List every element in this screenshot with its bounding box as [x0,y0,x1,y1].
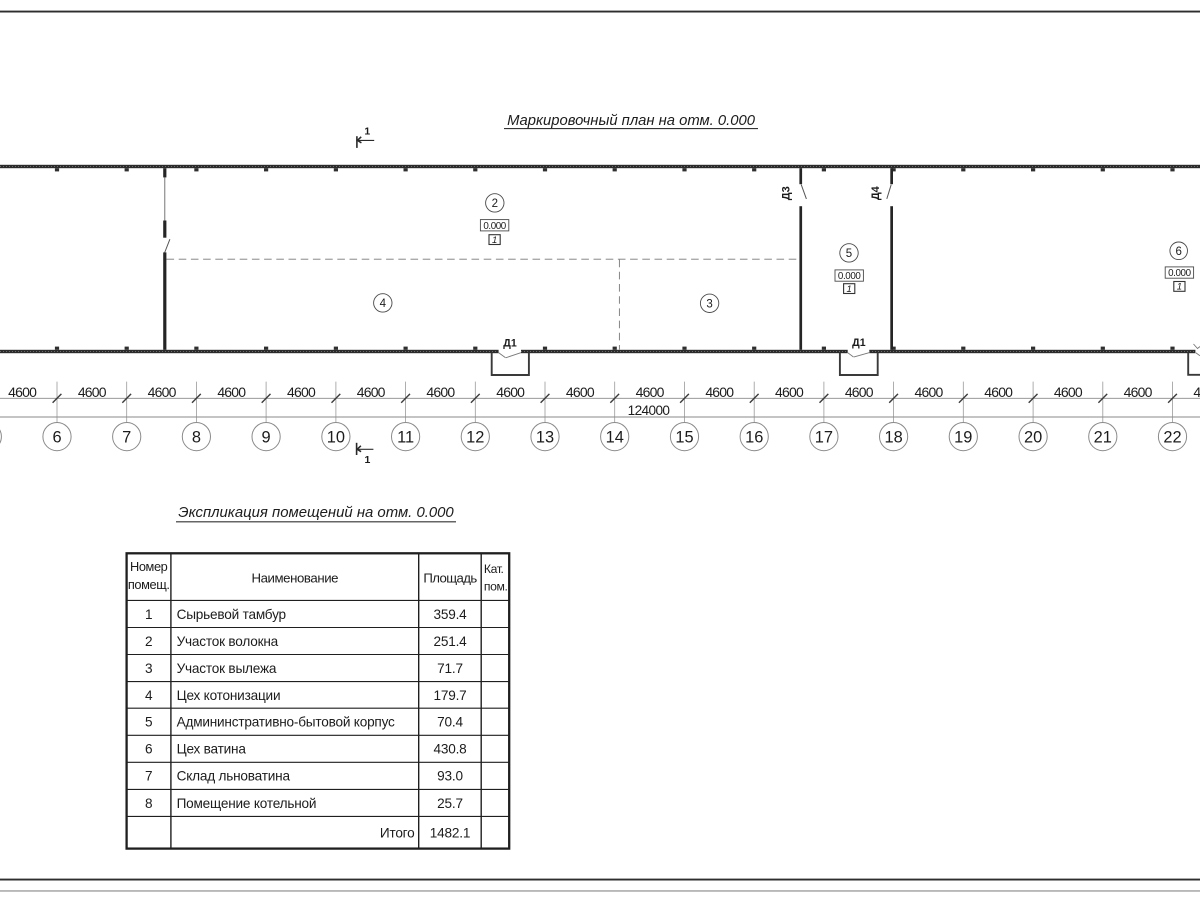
svg-text:0.000: 0.000 [838,271,861,282]
svg-text:359.4: 359.4 [433,607,467,622]
svg-text:4600: 4600 [775,384,804,400]
svg-text:0.000: 0.000 [483,221,506,232]
svg-text:4600: 4600 [8,384,37,400]
svg-text:71.7: 71.7 [437,661,463,676]
svg-text:4600: 4600 [984,384,1013,400]
svg-text:19: 19 [954,428,972,446]
svg-text:4600: 4600 [287,384,316,400]
svg-text:4: 4 [145,688,153,703]
svg-text:помещ.: помещ. [128,577,170,592]
svg-text:5: 5 [145,715,152,730]
svg-text:21: 21 [1094,428,1112,446]
svg-text:4600: 4600 [1054,384,1083,400]
svg-text:179.7: 179.7 [433,688,466,703]
svg-text:4600: 4600 [217,384,246,400]
svg-text:70.4: 70.4 [437,715,463,730]
svg-text:14: 14 [606,428,624,446]
svg-text:2: 2 [492,198,498,210]
svg-text:15: 15 [675,428,693,446]
svg-text:Кат.: Кат. [484,562,504,576]
svg-text:4600: 4600 [915,384,944,400]
svg-text:7: 7 [145,769,152,784]
svg-text:пом.: пом. [484,579,508,593]
svg-text:6: 6 [1175,246,1181,258]
svg-text:Участок волокна: Участок волокна [177,634,279,649]
svg-text:Экспликация помещений на отм.: Экспликация помещений на отм. 0.000 [178,505,454,521]
svg-text:4600: 4600 [1124,384,1153,400]
svg-text:Цех ватина: Цех ватина [177,742,247,757]
svg-text:12: 12 [466,428,484,446]
svg-text:4600: 4600 [705,384,734,400]
svg-text:Участок вылежа: Участок вылежа [177,661,277,676]
svg-text:4: 4 [380,298,387,310]
svg-text:4600: 4600 [1193,384,1200,400]
svg-text:3: 3 [706,298,712,310]
svg-text:17: 17 [815,428,833,446]
svg-text:Д1: Д1 [503,337,517,349]
svg-text:22: 22 [1163,428,1181,446]
svg-text:Склад льноватина: Склад льноватина [177,769,291,784]
svg-text:Итого: Итого [380,826,415,841]
svg-text:16: 16 [745,428,763,446]
svg-text:4600: 4600 [496,384,525,400]
svg-text:Д1: Д1 [852,337,866,349]
svg-text:251.4: 251.4 [433,634,467,649]
svg-text:4600: 4600 [148,384,177,400]
svg-text:1: 1 [364,454,370,466]
svg-text:3: 3 [145,661,152,676]
svg-text:8: 8 [145,796,152,811]
svg-text:Д4: Д4 [870,185,882,200]
svg-text:430.8: 430.8 [433,742,466,757]
svg-text:Д3: Д3 [781,186,793,200]
svg-text:Номер: Номер [130,559,168,574]
svg-text:11: 11 [397,428,414,446]
svg-text:4600: 4600 [78,384,107,400]
svg-text:4600: 4600 [636,384,665,400]
svg-text:1: 1 [847,284,852,295]
svg-text:Маркировочный план на отм. 0.0: Маркировочный план на отм. 0.000 [507,113,756,129]
svg-text:Админинстративно-бытовой корпу: Админинстративно-бытовой корпус [177,715,395,730]
svg-text:1: 1 [492,235,497,246]
svg-text:6: 6 [145,742,152,757]
svg-text:9: 9 [262,428,271,446]
svg-text:7: 7 [122,428,131,446]
svg-text:Цех котонизации: Цех котонизации [177,688,281,703]
svg-text:10: 10 [327,428,345,446]
svg-text:0.000: 0.000 [1168,268,1191,279]
svg-text:8: 8 [192,428,201,446]
svg-text:93.0: 93.0 [437,769,463,784]
svg-text:13: 13 [536,428,554,446]
svg-text:Площадь: Площадь [423,570,477,585]
svg-text:2: 2 [145,634,152,649]
svg-text:4600: 4600 [357,384,386,400]
svg-text:Сырьевой тамбур: Сырьевой тамбур [177,607,286,622]
svg-text:25.7: 25.7 [437,796,463,811]
svg-text:1: 1 [364,126,370,138]
svg-text:1: 1 [1177,282,1182,293]
svg-text:124000: 124000 [628,403,671,418]
svg-text:5: 5 [846,248,852,260]
svg-text:Помещение котельной: Помещение котельной [177,796,317,811]
svg-text:Наименование: Наименование [251,570,338,585]
svg-text:4600: 4600 [845,384,874,400]
svg-text:6: 6 [52,428,61,446]
svg-text:1482.1: 1482.1 [430,826,470,841]
svg-text:4600: 4600 [426,384,455,400]
svg-text:1: 1 [145,607,152,622]
svg-text:4600: 4600 [566,384,595,400]
svg-text:18: 18 [884,428,902,446]
svg-text:20: 20 [1024,428,1042,446]
